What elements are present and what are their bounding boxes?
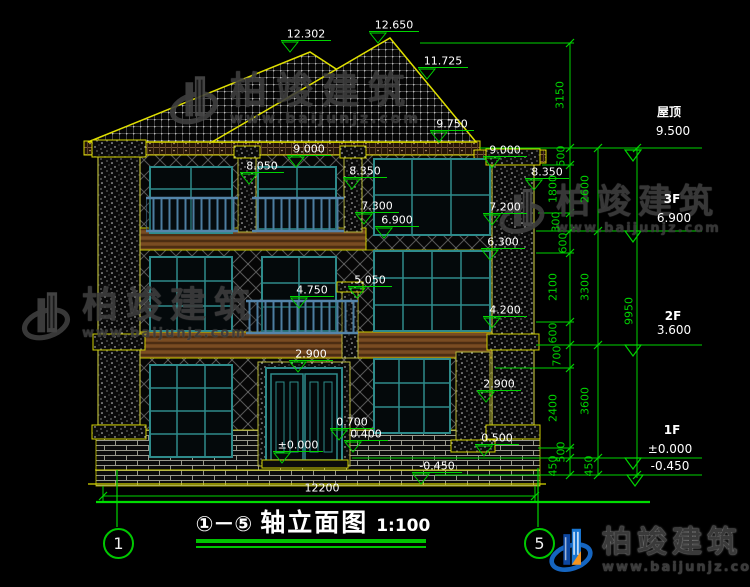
elev-2900-right: 2.900	[483, 379, 515, 390]
elev-0500: 0.500	[481, 433, 513, 444]
drawing-caption: ①－⑤ 轴立面图 1:100	[186, 503, 440, 539]
caption-underline-thin	[196, 546, 426, 548]
elev-0000: ±0.000	[278, 440, 319, 451]
dim-300: 300	[551, 212, 562, 233]
dim-500-a: 500	[556, 146, 567, 167]
dim-3150: 3150	[555, 81, 566, 109]
marker-triangle	[343, 178, 361, 190]
brand-logo: 柏竣建筑 www.baijunjz.com	[548, 524, 750, 578]
dim-2600: 2600	[580, 175, 591, 203]
marker-triangle	[287, 156, 305, 168]
dim-450-a: 450	[548, 456, 559, 477]
dim-3300: 3300	[580, 273, 591, 301]
cad-elevation-screenshot: 柏竣建筑 www.baijunjz.com 柏竣建筑 www.baijunjz.…	[0, 0, 750, 587]
elev-7300: 7.300	[361, 201, 393, 212]
elev-6300: 6.300	[487, 237, 519, 248]
elev-11725: 11.725	[424, 56, 463, 67]
elev-9750: 9.750	[436, 119, 468, 130]
marker-triangle	[430, 131, 448, 143]
dim-9950: 9950	[624, 297, 635, 325]
elev-0700: 0.700	[336, 417, 368, 428]
marker-triangle	[240, 173, 258, 185]
marker-triangle	[477, 391, 495, 403]
marker-triangle	[481, 249, 499, 261]
level-2f-label: 2F	[665, 310, 682, 322]
marker-triangle	[412, 473, 430, 485]
elev-12650: 12.650	[375, 20, 414, 31]
level-2f-elev: 3.600	[657, 324, 691, 336]
marker-triangle	[525, 179, 543, 191]
elev-2900-center: 2.900	[295, 349, 327, 360]
marker-triangle	[375, 227, 393, 239]
marker-triangle	[348, 287, 366, 299]
marker-triangle	[483, 157, 501, 169]
dim-450-b: 450	[584, 456, 595, 477]
level-roof-elev: 9.500	[656, 125, 690, 137]
marker-triangle	[273, 452, 291, 464]
level-3f-label: 3F	[664, 193, 681, 205]
caption-underline-thick	[196, 539, 426, 543]
axis-number: 5	[534, 534, 544, 553]
elev-7200: 7.200	[489, 202, 521, 213]
level-1f-label: 1F	[664, 424, 681, 436]
brand-name: 柏竣建筑	[602, 528, 750, 558]
elev-9000-right: 9.000	[489, 145, 521, 156]
dim-700: 700	[552, 346, 563, 367]
caption-axis-range: ①－⑤	[196, 508, 253, 538]
elev-4750: 4.750	[296, 285, 328, 296]
dim-600-b: 600	[548, 323, 559, 344]
marker-triangle	[290, 297, 308, 309]
elev-12302: 12.302	[287, 29, 326, 40]
elev-0400: 0.400	[350, 429, 382, 440]
marker-triangle	[418, 68, 436, 80]
caption-scale: 1:100	[376, 516, 430, 536]
dim-1800: 1800	[548, 175, 559, 203]
marker-triangle	[355, 213, 373, 225]
elev-8050: 8.050	[246, 161, 278, 172]
level-1f-elev: ±0.000	[648, 443, 692, 455]
baijun-logo-icon	[548, 524, 594, 578]
marker-triangle	[281, 41, 299, 53]
dim-2400: 2400	[548, 394, 559, 422]
elev-5050: 5.050	[354, 275, 386, 286]
marker-triangle	[344, 441, 362, 453]
marker-triangle	[369, 32, 387, 44]
elev-6900-left: 6.900	[381, 215, 413, 226]
marker-triangle	[483, 317, 501, 329]
axis-bubble-1: 1	[103, 528, 134, 559]
elev-8350-left: 8.350	[349, 166, 381, 177]
dim-2100: 2100	[548, 273, 559, 301]
level-ground-elev: -0.450	[651, 460, 690, 472]
level-3f-elev: 6.900	[657, 212, 691, 224]
marker-triangle	[475, 445, 493, 457]
elev-9000-left: 9.000	[293, 144, 325, 155]
level-roof-label: 屋顶	[657, 106, 681, 118]
marker-triangle	[483, 214, 501, 226]
axis-number: 1	[113, 534, 123, 553]
marker-triangle	[289, 361, 307, 373]
caption-title: 轴立面图	[260, 503, 368, 539]
dim-12200: 12200	[305, 483, 340, 494]
annotation-layer: 12.30212.65011.7259.7509.0008.0508.3507.…	[0, 0, 750, 587]
elev-4200: 4.200	[489, 305, 521, 316]
dim-600-a: 600	[558, 233, 569, 254]
brand-url: www.baijunjz.com	[602, 561, 750, 574]
dim-3600: 3600	[580, 387, 591, 415]
elev-neg0450: -0.450	[419, 461, 454, 472]
